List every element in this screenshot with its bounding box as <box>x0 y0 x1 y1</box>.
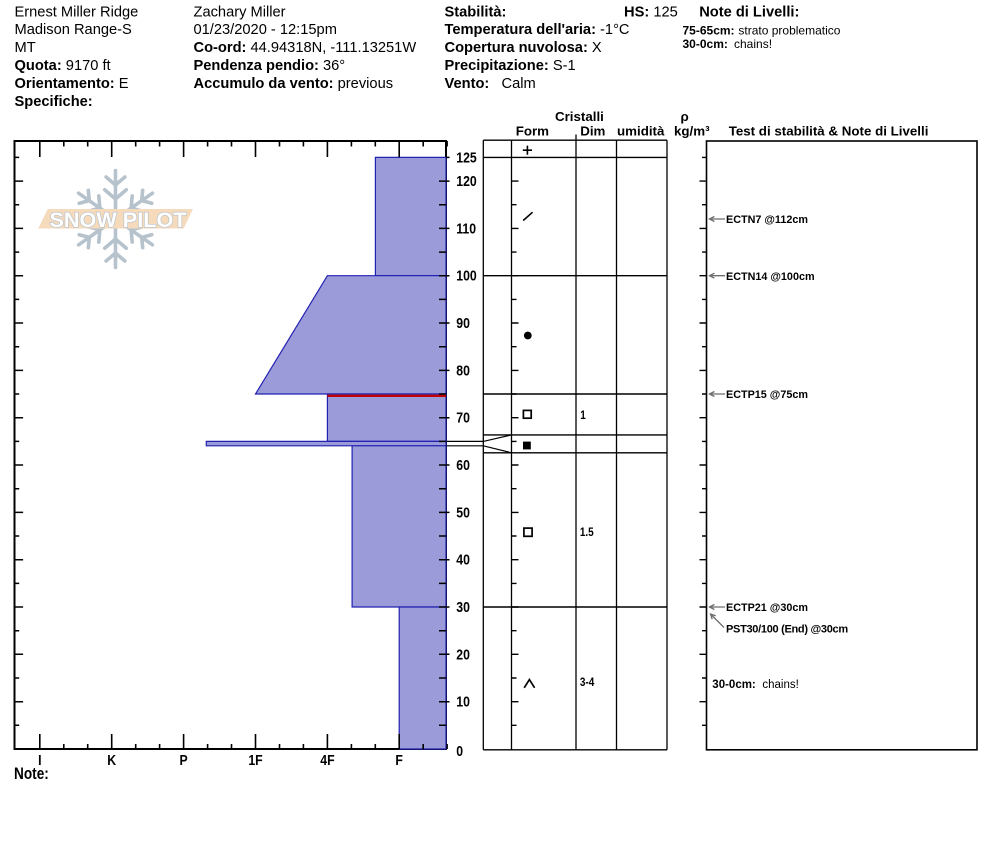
svg-text:Temperatura dell'aria: -1°C: Temperatura dell'aria: -1°C <box>445 22 630 38</box>
svg-text:01/23/2020 - 12:15pm: 01/23/2020 - 12:15pm <box>194 22 337 38</box>
svg-text:1.5: 1.5 <box>580 526 594 539</box>
svg-text:125: 125 <box>456 149 477 165</box>
svg-text:F: F <box>395 752 402 768</box>
svg-text:70: 70 <box>456 410 470 426</box>
svg-text:umidità: umidità <box>617 124 665 139</box>
svg-text:Cristalli: Cristalli <box>555 109 604 124</box>
svg-text:Zachary Miller: Zachary Miller <box>194 4 286 20</box>
svg-text:Madison Range-S: Madison Range-S <box>15 22 133 38</box>
svg-text:PST30/100 (End) @30cm: PST30/100 (End) @30cm <box>726 623 848 635</box>
svg-text:Ernest Miller Ridge: Ernest Miller Ridge <box>15 4 139 20</box>
svg-text:Form: Form <box>516 124 549 139</box>
svg-text:SNOW PILOT: SNOW PILOT <box>50 209 187 232</box>
svg-text:ECTP15 @75cm: ECTP15 @75cm <box>726 389 808 401</box>
svg-text:Stabilità:: Stabilità: <box>445 4 507 20</box>
svg-text:chains!: chains! <box>734 37 772 51</box>
svg-text:P: P <box>180 752 188 768</box>
svg-text:MT: MT <box>15 40 36 56</box>
svg-text:90: 90 <box>456 315 470 331</box>
svg-text:Precipitazione: S-1: Precipitazione: S-1 <box>445 58 576 74</box>
svg-text:Orientamento: E: Orientamento: E <box>15 76 129 92</box>
svg-text:30-0cm:: 30-0cm: <box>712 679 755 691</box>
svg-text:chains!: chains! <box>762 679 798 691</box>
svg-text:ECTP21 @30cm: ECTP21 @30cm <box>726 602 808 614</box>
svg-text:Test di stabilità & Note di Li: Test di stabilità & Note di Livelli <box>729 124 929 139</box>
svg-text:strato problematico: strato problematico <box>738 24 840 38</box>
svg-text:40: 40 <box>456 552 470 568</box>
svg-text:4F: 4F <box>320 752 334 768</box>
svg-text:Note di Livelli:: Note di Livelli: <box>699 4 799 20</box>
svg-text:ρ: ρ <box>681 109 689 124</box>
svg-text:Specifiche:: Specifiche: <box>15 94 93 110</box>
svg-text:1: 1 <box>580 409 586 422</box>
svg-text:Copertura nuvolosa: X: Copertura nuvolosa: X <box>445 40 602 56</box>
svg-text:Note:: Note: <box>14 765 49 783</box>
svg-text:Dim: Dim <box>580 124 605 139</box>
svg-text:1F: 1F <box>248 752 262 768</box>
svg-text:K: K <box>107 752 116 768</box>
svg-text:110: 110 <box>456 220 476 236</box>
svg-text:100: 100 <box>456 268 476 284</box>
svg-text:30: 30 <box>456 599 470 615</box>
svg-text:30-0cm:: 30-0cm: <box>683 37 728 51</box>
svg-text:10: 10 <box>456 694 470 710</box>
svg-text:ECTN7 @112cm: ECTN7 @112cm <box>726 214 808 226</box>
svg-text:HS: 125: HS: 125 <box>624 4 678 20</box>
svg-text:80: 80 <box>456 362 470 378</box>
svg-text:Quota: 9170 ft: Quota: 9170 ft <box>15 58 111 74</box>
svg-text:60: 60 <box>456 457 470 473</box>
svg-text:20: 20 <box>456 646 470 662</box>
svg-text:75-65cm:: 75-65cm: <box>683 24 735 38</box>
svg-text:Accumulo da vento: previous: Accumulo da vento: previous <box>194 76 394 92</box>
svg-text:Vento: Calm: Vento: Calm <box>445 76 536 92</box>
svg-text:120: 120 <box>456 173 476 189</box>
svg-text:ECTN14 @100cm: ECTN14 @100cm <box>726 271 815 283</box>
svg-text:0: 0 <box>456 743 463 759</box>
svg-text:Co-ord: 44.94318N, -111.13251W: Co-ord: 44.94318N, -111.13251W <box>194 40 417 56</box>
svg-text:3-4: 3-4 <box>580 676 595 689</box>
svg-text:50: 50 <box>456 504 470 520</box>
svg-text:kg/m³: kg/m³ <box>674 124 710 139</box>
svg-text:Pendenza pendio: 36°: Pendenza pendio: 36° <box>194 58 346 74</box>
